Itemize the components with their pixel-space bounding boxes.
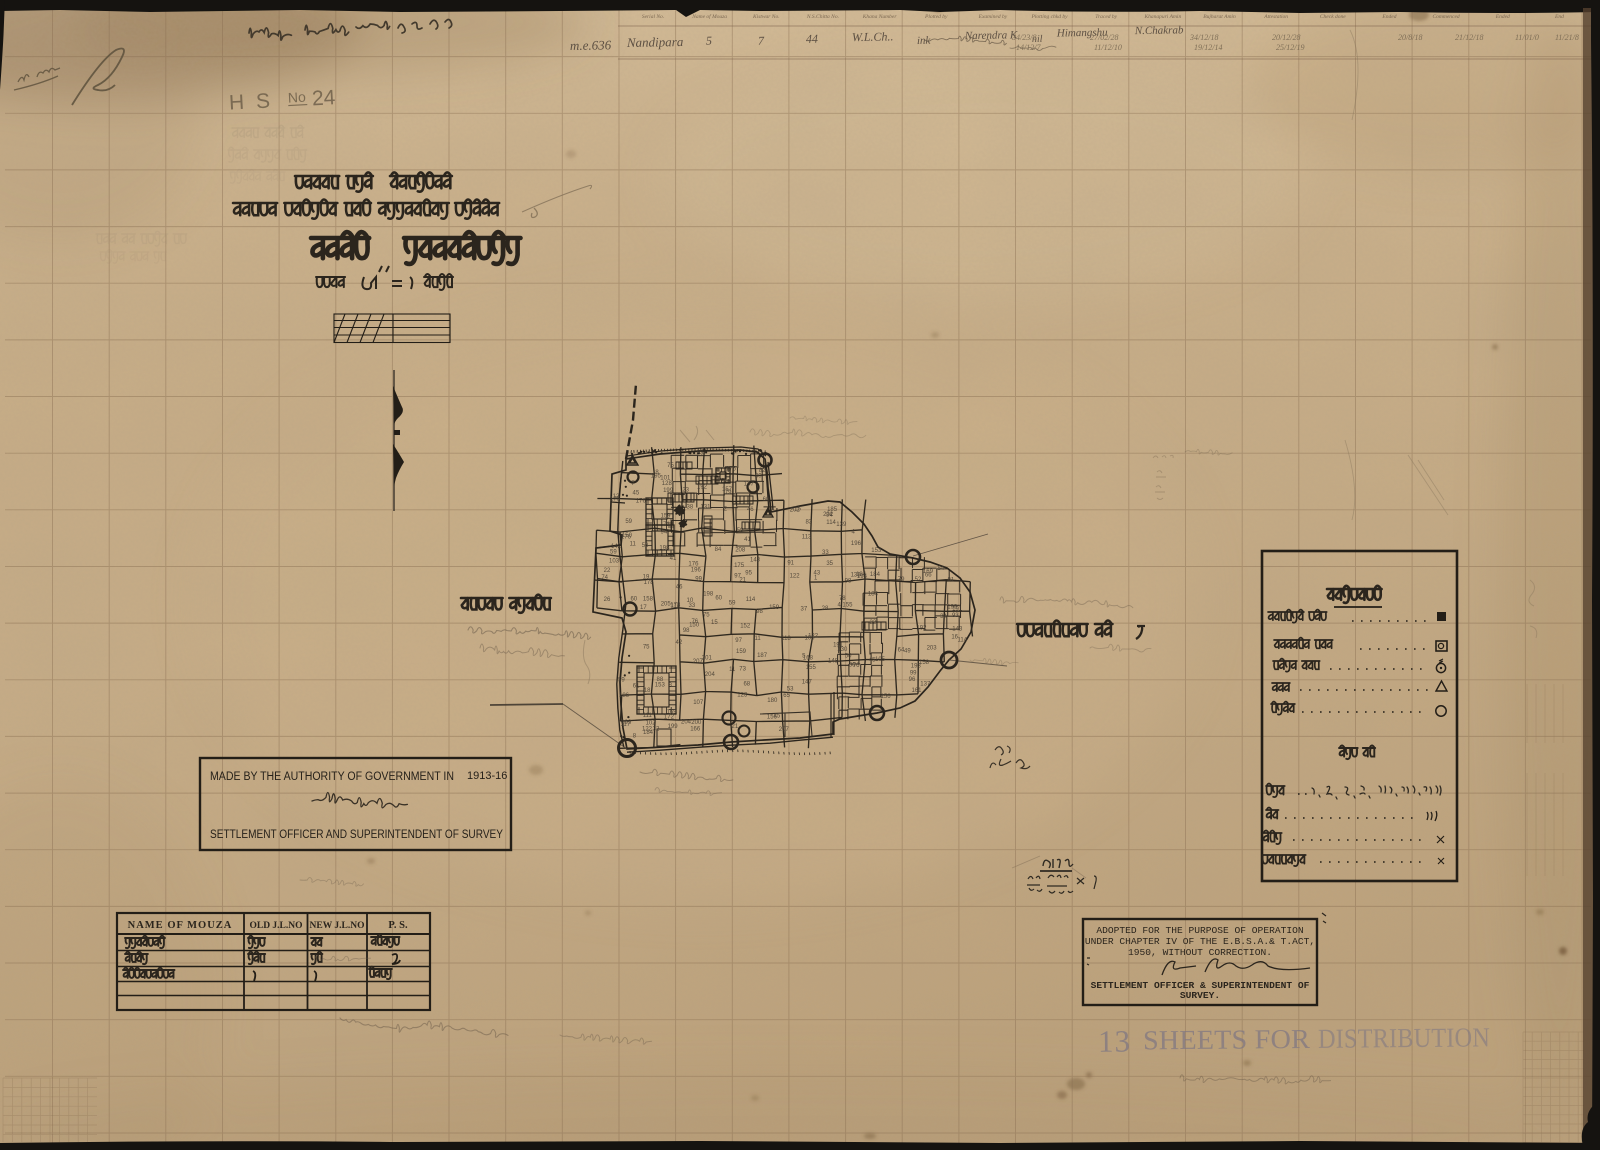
svg-text:21/12/18: 21/12/18 — [1455, 33, 1483, 42]
svg-text:199: 199 — [663, 488, 674, 494]
svg-text:176: 176 — [688, 561, 699, 567]
svg-text:45: 45 — [633, 491, 640, 497]
svg-text:98: 98 — [756, 609, 763, 615]
svg-text:34/12/18: 34/12/18 — [1189, 33, 1218, 42]
svg-text:93: 93 — [952, 613, 959, 619]
svg-text:1913-16: 1913-16 — [467, 770, 507, 782]
svg-text:204: 204 — [681, 719, 692, 725]
svg-text:143: 143 — [750, 557, 761, 563]
svg-text:54: 54 — [937, 566, 944, 572]
svg-text:End: End — [1554, 14, 1564, 20]
svg-text:74: 74 — [601, 575, 608, 581]
svg-text:137: 137 — [920, 681, 931, 687]
svg-text:161: 161 — [911, 688, 922, 694]
svg-text:107: 107 — [693, 700, 704, 706]
svg-text:98: 98 — [683, 628, 690, 634]
svg-text:NEW J.L.NO: NEW J.L.NO — [310, 921, 365, 931]
svg-text:123: 123 — [737, 693, 748, 699]
svg-text:38: 38 — [687, 505, 694, 511]
svg-text:41: 41 — [670, 556, 677, 562]
svg-text:23: 23 — [682, 487, 689, 493]
svg-text:118: 118 — [671, 603, 681, 609]
svg-text:99: 99 — [910, 671, 917, 677]
svg-text:192: 192 — [916, 626, 927, 632]
svg-text:50: 50 — [845, 654, 852, 660]
svg-text:153: 153 — [871, 548, 882, 554]
svg-text:Khana Number: Khana Number — [862, 14, 898, 20]
svg-text:97: 97 — [734, 573, 741, 579]
svg-text:53: 53 — [642, 543, 649, 549]
svg-text:SETTLEMENT OFFICER AND SUPERI: SETTLEMENT OFFICER AND SUPERINTENDENT OF… — [210, 829, 503, 841]
svg-text:37: 37 — [801, 606, 808, 612]
svg-text:156: 156 — [881, 694, 892, 700]
svg-text:16: 16 — [951, 634, 958, 640]
svg-text:76: 76 — [691, 619, 698, 625]
svg-text:103: 103 — [609, 558, 620, 564]
svg-text:W.L.Ch..: W.L.Ch.. — [852, 29, 894, 44]
svg-text:114: 114 — [826, 520, 836, 526]
svg-text:52: 52 — [915, 577, 922, 583]
svg-text:44: 44 — [806, 32, 818, 46]
svg-text:34: 34 — [940, 614, 947, 620]
svg-text:68: 68 — [743, 682, 750, 688]
svg-text:Kistwar No.: Kistwar No. — [752, 14, 780, 20]
svg-text:42: 42 — [676, 640, 683, 646]
svg-text:139: 139 — [836, 522, 847, 528]
svg-text:33: 33 — [822, 550, 829, 556]
svg-text:118: 118 — [781, 636, 791, 642]
svg-text:88: 88 — [657, 677, 664, 683]
svg-text:20/8/18: 20/8/18 — [1398, 33, 1422, 42]
svg-text:71: 71 — [663, 522, 670, 528]
svg-text:Traced by: Traced by — [1095, 14, 1117, 20]
svg-text:NAME OF MOUZA: NAME OF MOUZA — [128, 920, 233, 931]
svg-text:176: 176 — [621, 535, 632, 541]
svg-text:117: 117 — [621, 722, 631, 728]
svg-text:122: 122 — [790, 574, 801, 580]
svg-text:35: 35 — [826, 561, 833, 567]
svg-text:201: 201 — [702, 656, 713, 662]
svg-text:178: 178 — [644, 580, 655, 586]
svg-text:SURVEY.: SURVEY. — [1180, 990, 1220, 1001]
svg-text:186: 186 — [619, 693, 630, 699]
svg-text:22: 22 — [870, 620, 877, 626]
svg-text:45: 45 — [869, 658, 876, 664]
svg-text:97: 97 — [735, 638, 742, 644]
svg-text:1950, WITHOUT CORRECTION.: 1950, WITHOUT CORRECTION. — [1128, 947, 1272, 958]
svg-text:84: 84 — [715, 547, 722, 553]
svg-text:53: 53 — [697, 450, 704, 456]
svg-text:130: 130 — [837, 647, 848, 653]
svg-text:198: 198 — [659, 545, 670, 551]
svg-text:128: 128 — [662, 481, 673, 487]
svg-text:DISTRIBUTION: DISTRIBUTION — [1318, 1021, 1490, 1053]
svg-text:78: 78 — [839, 596, 846, 602]
svg-text:199: 199 — [668, 724, 679, 730]
svg-text:155: 155 — [842, 603, 853, 609]
svg-text:15: 15 — [711, 620, 718, 626]
svg-text:80: 80 — [755, 474, 762, 480]
svg-text:Khanapuri Amin: Khanapuri Amin — [1143, 14, 1181, 20]
svg-text:83: 83 — [805, 520, 812, 526]
svg-text:200: 200 — [691, 720, 702, 726]
svg-text:11: 11 — [754, 636, 761, 642]
svg-text:147: 147 — [802, 679, 813, 685]
svg-text:59: 59 — [737, 528, 744, 534]
svg-text:159: 159 — [660, 514, 671, 520]
svg-text:153: 153 — [655, 682, 666, 688]
svg-text:196: 196 — [691, 568, 702, 574]
svg-text:26: 26 — [604, 597, 611, 603]
svg-text:105: 105 — [875, 657, 886, 663]
svg-text:P. S.: P. S. — [388, 920, 408, 931]
svg-text:111: 111 — [643, 713, 653, 719]
svg-text:192: 192 — [697, 485, 708, 491]
svg-text:169: 169 — [923, 569, 934, 575]
svg-text:11/21/8: 11/21/8 — [1555, 33, 1579, 42]
svg-text:194: 194 — [857, 574, 868, 580]
svg-text:159: 159 — [736, 649, 747, 655]
svg-text:137: 137 — [744, 481, 755, 487]
svg-text:198: 198 — [703, 591, 714, 597]
svg-text:5: 5 — [706, 34, 712, 48]
svg-text:Ended: Ended — [1495, 14, 1510, 20]
svg-text:169: 169 — [667, 709, 678, 715]
svg-text:13: 13 — [1098, 1023, 1131, 1058]
svg-text:11: 11 — [729, 667, 736, 673]
svg-text:187: 187 — [757, 653, 768, 659]
svg-text:96: 96 — [909, 677, 916, 683]
svg-text:184: 184 — [868, 592, 879, 598]
svg-text:32: 32 — [653, 727, 660, 733]
svg-text:12: 12 — [613, 494, 620, 500]
svg-text:60: 60 — [630, 597, 637, 603]
svg-text:34/23/8: 34/23/8 — [1011, 33, 1036, 42]
svg-text:Ended: Ended — [1381, 14, 1396, 20]
svg-text:49: 49 — [904, 648, 911, 654]
svg-text:27/02/28: 27/02/28 — [1090, 33, 1118, 42]
svg-text:131: 131 — [700, 504, 711, 510]
svg-text:60: 60 — [715, 596, 722, 602]
svg-text:41: 41 — [744, 537, 751, 543]
svg-text:175: 175 — [734, 563, 745, 569]
svg-text:101: 101 — [660, 475, 671, 481]
svg-text:203: 203 — [927, 646, 938, 652]
svg-text:196: 196 — [851, 541, 862, 547]
svg-text:191: 191 — [952, 606, 963, 612]
svg-text:10: 10 — [687, 598, 694, 604]
svg-text:UNDER CHAPTER IV OF THE E.B.S.: UNDER CHAPTER IV OF THE E.B.S.A.& T.ACT, — [1085, 936, 1315, 947]
svg-text:143: 143 — [952, 627, 963, 633]
svg-text:180: 180 — [767, 698, 778, 704]
svg-text:148: 148 — [828, 658, 839, 664]
svg-text:MADE BY THE AUTHORITY OF GOVER: MADE BY THE AUTHORITY OF GOVERNMENT IN — [210, 771, 454, 783]
svg-text:OLD J.L.NO: OLD J.L.NO — [249, 921, 302, 931]
svg-text:82: 82 — [759, 468, 766, 474]
svg-text:204: 204 — [705, 672, 716, 678]
svg-text:75: 75 — [643, 645, 650, 651]
svg-text:166: 166 — [690, 727, 701, 733]
svg-text:28: 28 — [822, 606, 829, 612]
svg-text:61: 61 — [633, 683, 640, 689]
svg-text:53: 53 — [787, 687, 794, 693]
svg-text:SHEETS FOR: SHEETS FOR — [1143, 1023, 1311, 1055]
svg-text:N.Chakrab: N.Chakrab — [1134, 24, 1184, 37]
svg-text:Plotting chkd by: Plotting chkd by — [1031, 14, 1069, 20]
svg-text:21: 21 — [732, 724, 739, 730]
svg-text:Narendra K: Narendra K — [964, 29, 1018, 42]
svg-text:60: 60 — [763, 497, 770, 503]
svg-text:79: 79 — [898, 577, 905, 583]
svg-text:Name of Mouza: Name of Mouza — [691, 13, 727, 20]
svg-text:59: 59 — [625, 519, 632, 525]
svg-text:Examined by: Examined by — [978, 14, 1008, 20]
svg-text:11: 11 — [630, 542, 637, 548]
svg-text:91: 91 — [787, 560, 794, 566]
svg-text:73: 73 — [739, 666, 746, 672]
svg-text:113: 113 — [802, 535, 812, 541]
svg-text:159: 159 — [769, 605, 780, 611]
svg-text:Nandipara: Nandipara — [626, 34, 684, 50]
svg-text:152: 152 — [740, 624, 751, 630]
svg-text:75: 75 — [703, 613, 710, 619]
svg-text:Attestation: Attestation — [1263, 14, 1288, 20]
svg-text:94: 94 — [661, 530, 668, 536]
svg-text:22: 22 — [604, 568, 611, 574]
svg-text:Check done: Check done — [1320, 14, 1346, 20]
svg-text:11/01/0: 11/01/0 — [1515, 33, 1539, 42]
svg-text:193: 193 — [911, 663, 922, 669]
svg-text:N.S.Chitta No.: N.S.Chitta No. — [806, 14, 839, 20]
svg-text:11/12/10: 11/12/10 — [1094, 43, 1122, 52]
svg-text:H S: H S — [228, 89, 273, 114]
svg-text:25/12/19: 25/12/19 — [1276, 43, 1304, 52]
svg-text:176: 176 — [636, 499, 647, 505]
svg-text:65: 65 — [783, 693, 790, 699]
svg-text:15: 15 — [794, 507, 801, 513]
svg-text:79: 79 — [718, 478, 725, 484]
svg-text:158: 158 — [643, 597, 654, 603]
svg-text:46: 46 — [747, 507, 754, 513]
svg-text:99: 99 — [695, 577, 702, 583]
svg-text:46: 46 — [676, 585, 683, 591]
svg-text:114: 114 — [746, 597, 756, 603]
svg-text:24: 24 — [311, 86, 336, 110]
svg-text:Bujharat Amin: Bujharat Amin — [1203, 14, 1236, 20]
svg-text:114: 114 — [958, 638, 968, 644]
svg-text:34: 34 — [826, 513, 833, 519]
svg-text:98: 98 — [845, 578, 852, 584]
svg-text:155: 155 — [806, 665, 817, 671]
svg-text:79: 79 — [725, 490, 732, 496]
svg-text:m.e.636: m.e.636 — [570, 37, 612, 53]
svg-text:Plotted by: Plotted by — [924, 14, 948, 20]
svg-text:20/12/28: 20/12/28 — [1272, 33, 1300, 42]
svg-text:76: 76 — [853, 663, 860, 669]
svg-text:59: 59 — [618, 677, 625, 683]
svg-text:208: 208 — [735, 548, 746, 554]
svg-text:207: 207 — [779, 727, 790, 733]
svg-text:Commenced: Commenced — [1433, 14, 1460, 20]
svg-text:81: 81 — [948, 577, 955, 583]
svg-text:ADOPTED FOR THE PURPOSE OF OPE: ADOPTED FOR THE PURPOSE OF OPERATION — [1096, 925, 1303, 936]
svg-text:142: 142 — [611, 544, 622, 550]
svg-text:19/12/14: 19/12/14 — [1194, 43, 1222, 52]
svg-text:95: 95 — [745, 571, 752, 577]
svg-text:45: 45 — [774, 714, 781, 720]
svg-text:75: 75 — [667, 463, 674, 469]
svg-text:105: 105 — [804, 636, 815, 642]
svg-text:122: 122 — [642, 727, 653, 733]
svg-text:59: 59 — [729, 601, 736, 607]
svg-text:17: 17 — [640, 605, 647, 611]
svg-text:No: No — [287, 89, 306, 106]
svg-text:19: 19 — [643, 575, 650, 581]
svg-text:Serial No.: Serial No. — [642, 14, 664, 20]
svg-text:18: 18 — [644, 688, 651, 694]
svg-text:175: 175 — [726, 467, 737, 473]
svg-text:102: 102 — [646, 720, 657, 726]
svg-text:184: 184 — [870, 572, 881, 578]
